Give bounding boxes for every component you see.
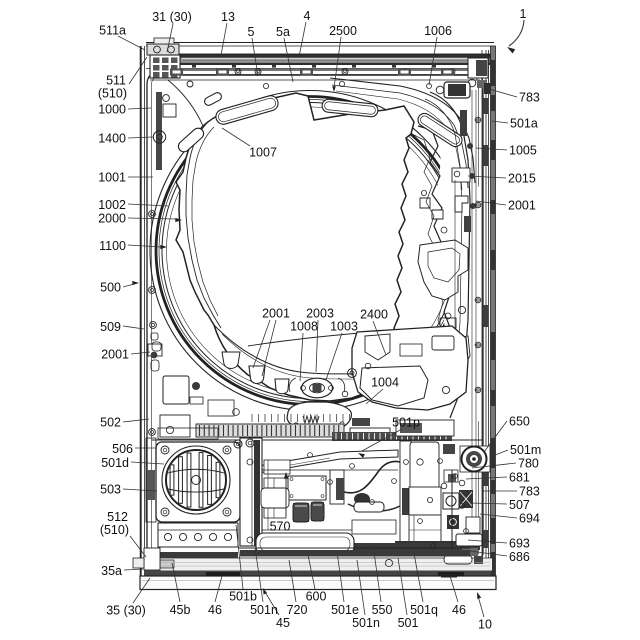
svg-text:1004: 1004 [371, 376, 399, 390]
svg-text:501d: 501d [101, 456, 129, 470]
svg-text:(510): (510) [100, 523, 129, 537]
svg-text:(510): (510) [98, 87, 127, 101]
svg-text:501b: 501b [229, 590, 257, 604]
svg-text:501a: 501a [510, 117, 538, 131]
svg-text:570: 570 [270, 520, 291, 534]
svg-text:501e: 501e [331, 603, 359, 617]
svg-text:13: 13 [221, 10, 235, 24]
svg-text:31 (30): 31 (30) [152, 10, 192, 24]
svg-text:46: 46 [208, 603, 222, 617]
svg-text:1007: 1007 [249, 146, 277, 160]
svg-text:1002: 1002 [98, 198, 126, 212]
svg-text:1100: 1100 [99, 239, 126, 253]
svg-text:507: 507 [509, 498, 530, 512]
svg-text:2500: 2500 [329, 24, 357, 38]
svg-text:502: 502 [100, 416, 121, 430]
svg-text:550: 550 [372, 603, 393, 617]
svg-text:720: 720 [287, 603, 308, 617]
svg-text:2001: 2001 [508, 199, 536, 213]
svg-text:45b: 45b [170, 603, 191, 617]
svg-text:512: 512 [107, 510, 128, 524]
svg-text:2001: 2001 [101, 348, 129, 362]
svg-text:501p: 501p [392, 416, 420, 430]
svg-text:4: 4 [304, 9, 311, 23]
svg-text:2000: 2000 [98, 212, 126, 226]
svg-text:45: 45 [276, 616, 290, 630]
svg-text:5: 5 [248, 25, 255, 39]
svg-text:1008: 1008 [290, 320, 318, 334]
svg-text:35a: 35a [101, 564, 122, 578]
svg-text:693: 693 [509, 537, 530, 551]
svg-text:600: 600 [306, 590, 327, 604]
svg-text:681: 681 [509, 471, 530, 485]
svg-text:1000: 1000 [98, 103, 126, 117]
svg-text:35 (30): 35 (30) [106, 604, 146, 618]
svg-text:5a: 5a [276, 25, 290, 39]
svg-text:1400: 1400 [98, 132, 126, 146]
svg-text:2001: 2001 [262, 307, 290, 321]
svg-text:46: 46 [452, 603, 466, 617]
svg-text:500: 500 [100, 281, 121, 295]
svg-text:503: 503 [100, 483, 121, 497]
svg-text:1006: 1006 [424, 24, 452, 38]
svg-text:780: 780 [518, 457, 539, 471]
svg-text:694: 694 [519, 512, 540, 526]
svg-text:1001: 1001 [98, 171, 126, 185]
svg-text:506: 506 [112, 442, 133, 456]
svg-text:501q: 501q [410, 603, 438, 617]
svg-text:2015: 2015 [508, 172, 536, 186]
svg-text:501n: 501n [250, 603, 278, 617]
svg-text:650: 650 [509, 415, 530, 429]
svg-text:10: 10 [478, 618, 492, 632]
svg-text:2003: 2003 [306, 307, 334, 321]
svg-text:686: 686 [509, 550, 530, 564]
svg-text:2400: 2400 [360, 308, 388, 322]
svg-text:501m: 501m [510, 443, 541, 457]
svg-text:501n: 501n [352, 616, 380, 630]
svg-text:1005: 1005 [509, 144, 537, 158]
svg-text:783: 783 [519, 485, 540, 499]
svg-text:1: 1 [520, 7, 527, 21]
svg-text:783: 783 [519, 91, 540, 105]
svg-text:509: 509 [100, 320, 121, 334]
svg-text:511: 511 [106, 74, 126, 88]
svg-text:511a: 511a [99, 24, 126, 38]
svg-text:501: 501 [398, 616, 419, 630]
svg-text:1003: 1003 [330, 320, 358, 334]
